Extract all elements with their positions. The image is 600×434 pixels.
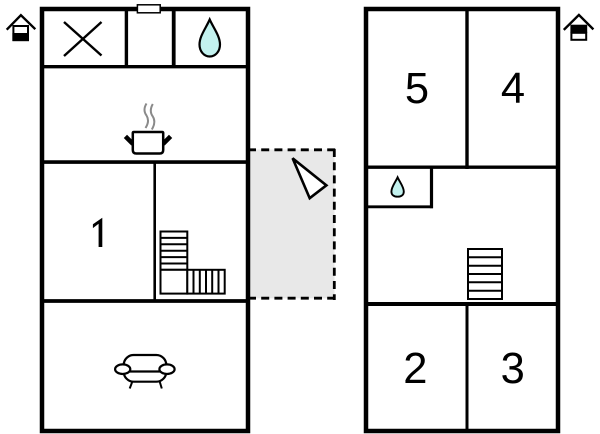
- svg-text:3: 3: [501, 345, 525, 393]
- svg-text:2: 2: [403, 345, 427, 393]
- svg-text:4: 4: [501, 65, 525, 113]
- svg-text:5: 5: [405, 65, 429, 113]
